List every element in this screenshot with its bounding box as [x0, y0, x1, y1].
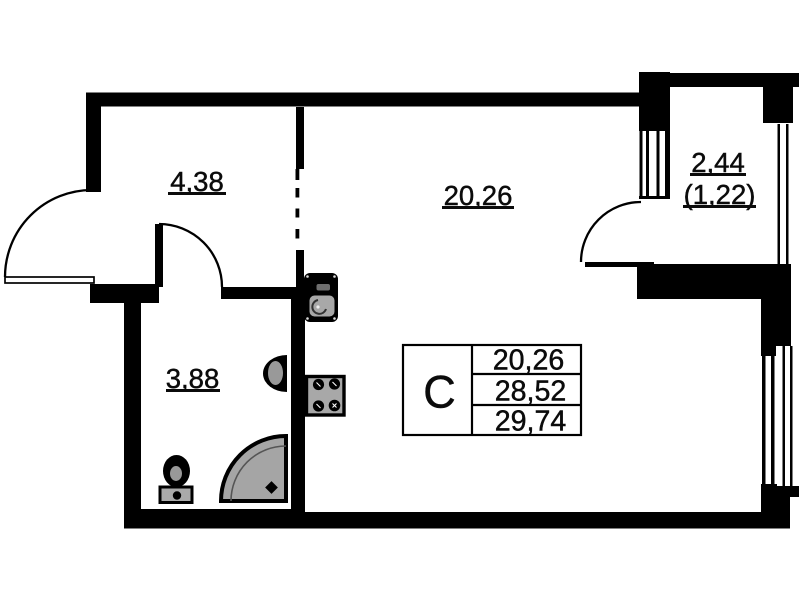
svg-text:28,52: 28,52 [495, 376, 567, 408]
svg-text:29,74: 29,74 [495, 406, 567, 438]
svg-text:С: С [423, 367, 456, 418]
svg-text:20,26: 20,26 [493, 345, 565, 377]
